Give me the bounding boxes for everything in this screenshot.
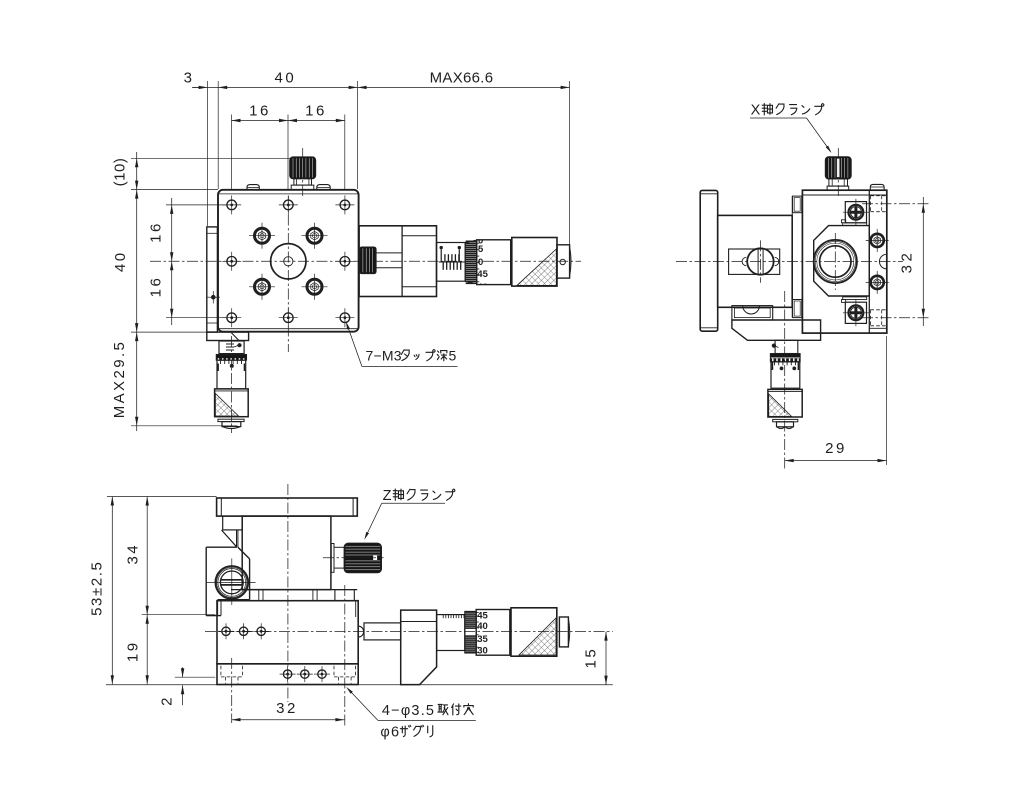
svg-text:32: 32 [276,700,298,717]
svg-text:16: 16 [305,103,327,120]
svg-text:35: 35 [477,634,488,645]
svg-text:5: 5 [449,348,457,364]
svg-text:16: 16 [148,276,165,298]
svg-text:40: 40 [112,250,129,272]
svg-text:16: 16 [148,221,165,243]
svg-text:16: 16 [249,103,271,120]
svg-text:Z: Z [383,488,392,504]
svg-text:32: 32 [899,250,916,274]
svg-text:45: 45 [477,269,488,280]
svg-text:29: 29 [825,440,847,457]
svg-text:MAX29.5: MAX29.5 [111,340,128,419]
svg-text:2: 2 [158,695,175,706]
svg-text:X: X [751,103,761,119]
svg-text:φ6: φ6 [380,725,400,741]
svg-text:7−M3: 7−M3 [366,348,402,364]
svg-text:34: 34 [125,543,142,565]
svg-text:3: 3 [184,70,195,87]
svg-text:15: 15 [583,647,600,669]
svg-text:40: 40 [275,70,297,87]
svg-text:MAX66.6: MAX66.6 [430,70,494,87]
svg-text:4−φ3.5: 4−φ3.5 [382,703,435,719]
svg-text:19: 19 [125,640,142,662]
svg-text:(10): (10) [112,158,129,187]
svg-text:40: 40 [477,621,488,632]
svg-text:53±2.5: 53±2.5 [89,561,106,616]
